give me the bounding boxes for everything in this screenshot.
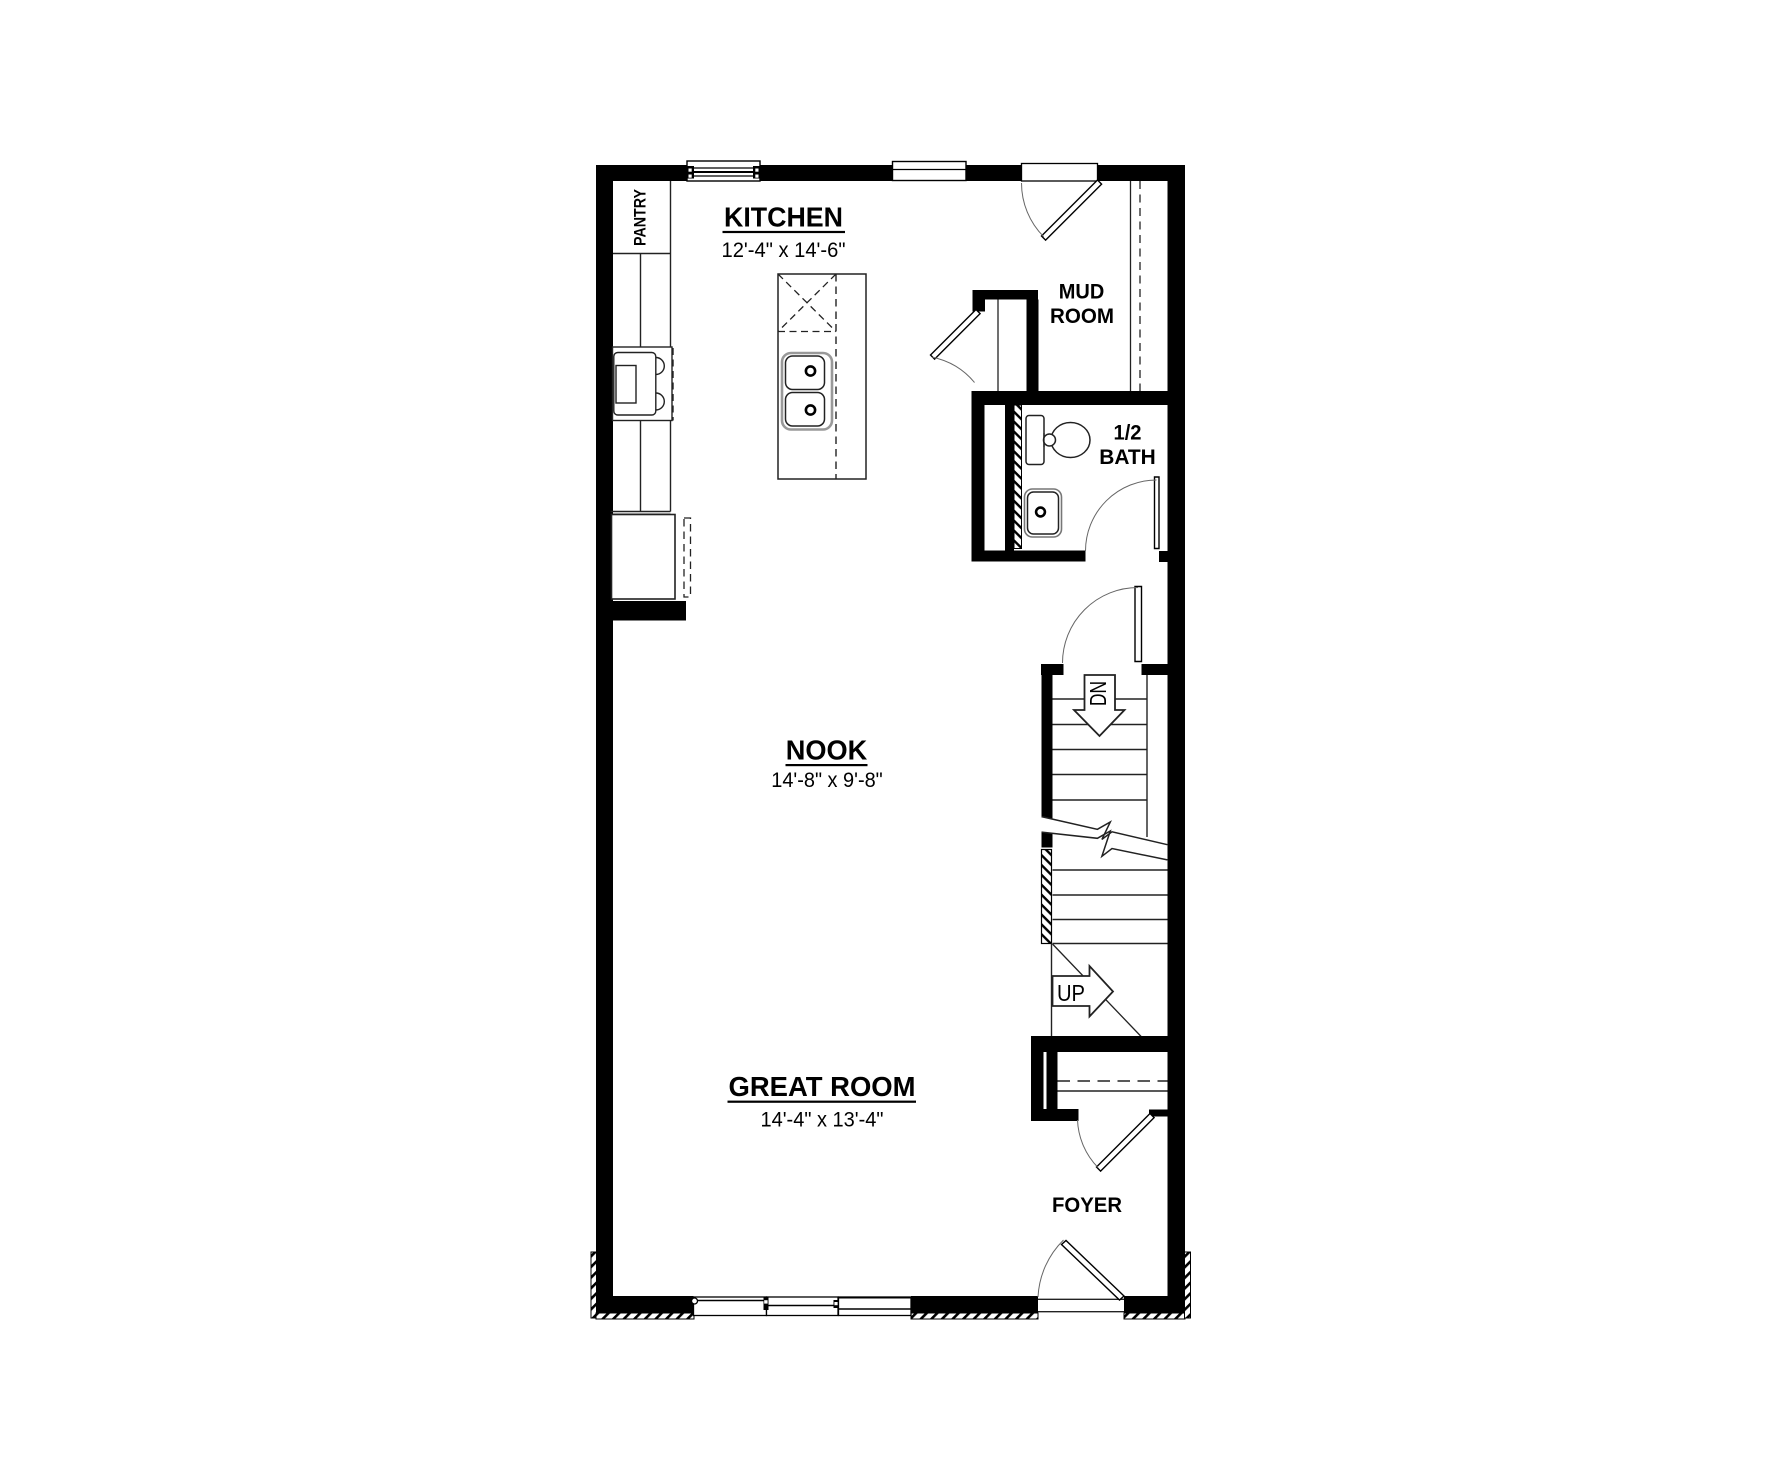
svg-text:14'-8" x 9'-8": 14'-8" x 9'-8" <box>771 769 883 792</box>
svg-text:1/2: 1/2 <box>1114 421 1142 444</box>
svg-text:NOOK: NOOK <box>786 734 868 765</box>
svg-text:BATH: BATH <box>1099 446 1156 469</box>
svg-text:PANTRY: PANTRY <box>631 188 650 246</box>
svg-text:FOYER: FOYER <box>1052 1194 1122 1217</box>
svg-text:UP: UP <box>1057 980 1085 1006</box>
svg-text:GREAT ROOM: GREAT ROOM <box>729 1071 916 1102</box>
svg-text:DN: DN <box>1085 681 1111 706</box>
svg-text:MUD: MUD <box>1059 280 1105 303</box>
svg-text:12'-4" x 14'-6": 12'-4" x 14'-6" <box>722 239 846 262</box>
svg-text:KITCHEN: KITCHEN <box>724 201 843 232</box>
svg-text:14'-4" x 13'-4": 14'-4" x 13'-4" <box>761 1108 884 1131</box>
svg-text:ROOM: ROOM <box>1050 305 1114 328</box>
